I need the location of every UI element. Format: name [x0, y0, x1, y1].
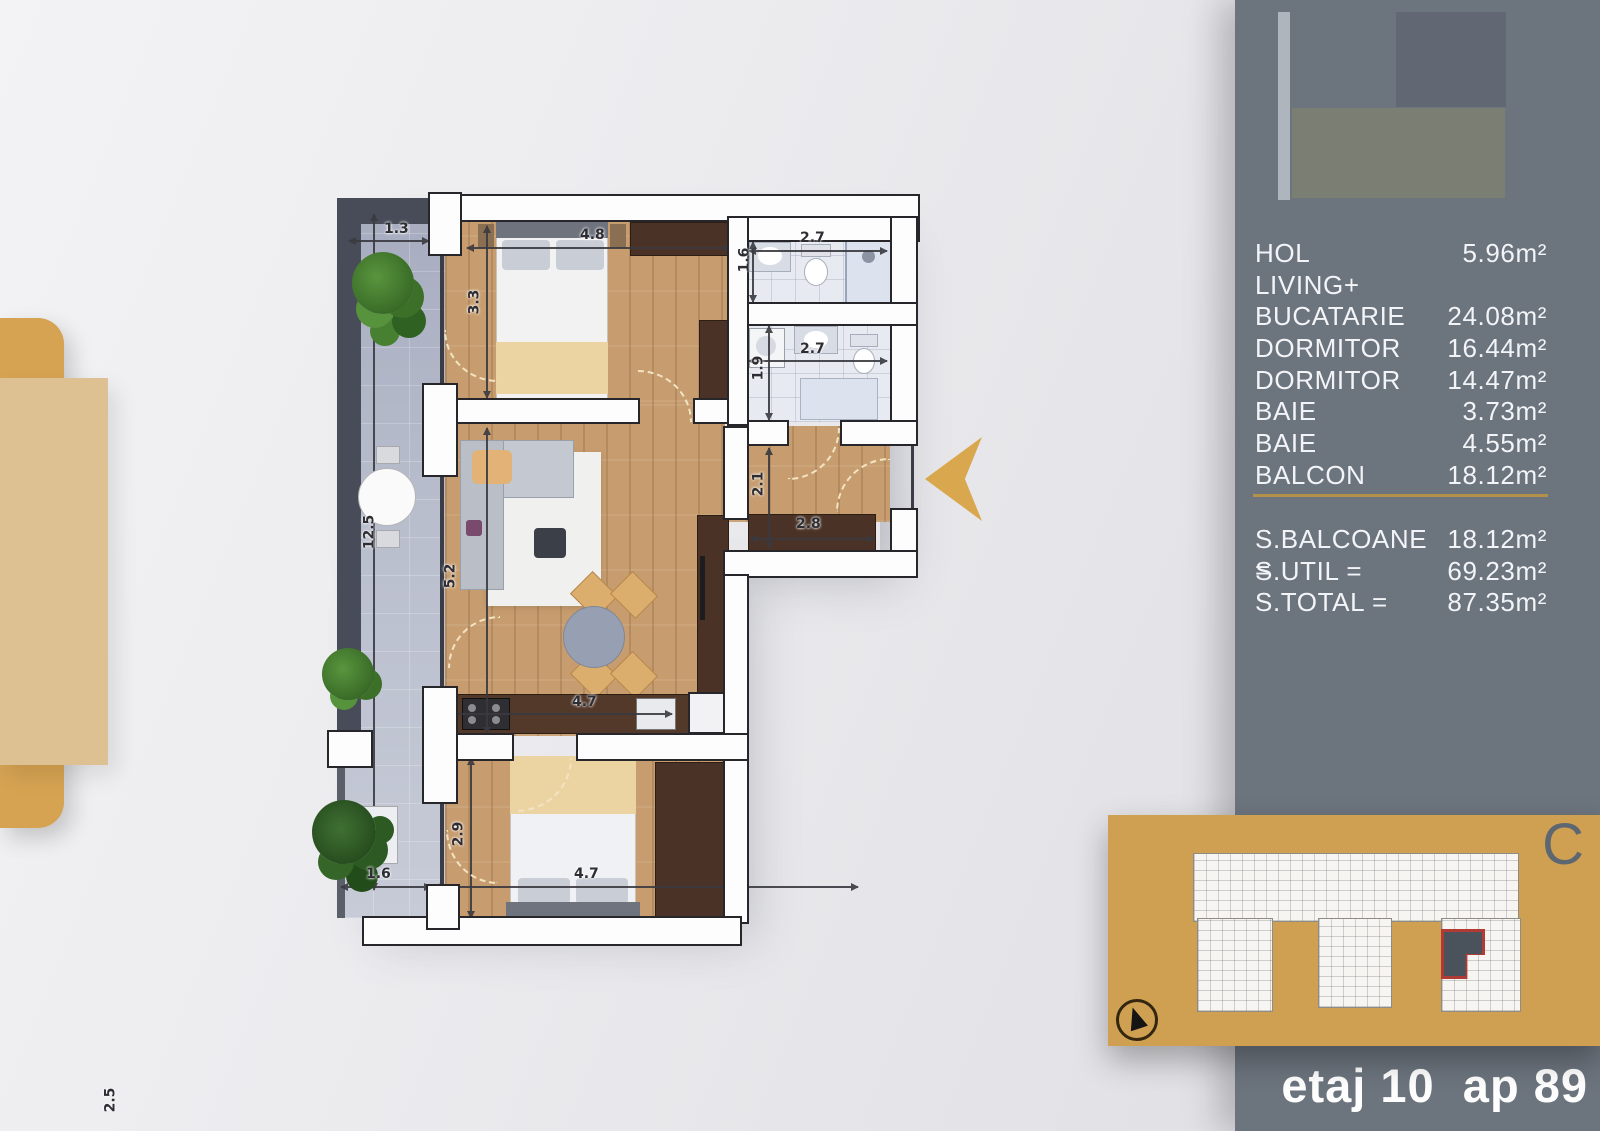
- dimension-label: 4.8: [580, 227, 605, 243]
- dimension-label: 2.8: [796, 516, 821, 532]
- dimension-label: 2.1: [750, 472, 766, 497]
- logo-ghost-block: [1396, 12, 1506, 107]
- floor-apartment-label: etaj 10 ap 89: [1281, 1058, 1588, 1113]
- room-row-label: DORMITOR: [1255, 333, 1401, 364]
- room-row-value: 14.47m²: [1447, 365, 1547, 396]
- room-row-value: 3.73m²: [1462, 396, 1547, 427]
- room-row-value: 24.08m²: [1447, 301, 1547, 332]
- room-row-label: LIVING+: [1255, 270, 1360, 301]
- site-plan-panel: C: [1108, 815, 1600, 1046]
- room-row: BALCON18.12m²: [1255, 460, 1547, 492]
- dimension-label: 1.6: [366, 866, 391, 882]
- logo-ghost-block: [1292, 108, 1505, 198]
- room-row: DORMITOR14.47m²: [1255, 365, 1547, 397]
- room-row-label: BAIE: [1255, 396, 1317, 427]
- dimension-label: 4.7: [574, 866, 599, 882]
- total-row-value: 69.23m²: [1447, 556, 1547, 587]
- room-area-list: HOL5.96m²LIVING+BUCATARIE24.08m²DORMITOR…: [1255, 238, 1547, 492]
- room-row-value: 5.96m²: [1462, 238, 1547, 269]
- dimension-label: 1.6: [736, 248, 752, 273]
- room-row: BAIE3.73m²: [1255, 396, 1547, 428]
- dimension-label: 2.5: [102, 1088, 118, 1113]
- room-row: LIVING+: [1255, 270, 1547, 302]
- page: 1.312.53.34.82.71.62.71.92.12.85.24.72.9…: [0, 0, 1600, 1131]
- dimension-label: 4.7: [572, 694, 597, 710]
- room-row: BUCATARIE24.08m²: [1255, 301, 1547, 333]
- room-row-value: 4.55m²: [1462, 428, 1547, 459]
- dimension-label: 2.9: [450, 822, 466, 847]
- building-footprint-bar: [1193, 853, 1519, 922]
- section-letter: C: [1542, 811, 1584, 878]
- total-row-label: S.UTIL =: [1255, 556, 1362, 587]
- building-wing-left: [1197, 918, 1273, 1012]
- room-row-value: 18.12m²: [1447, 460, 1547, 491]
- building-wing-middle: [1318, 918, 1392, 1008]
- gold-divider: [1253, 494, 1548, 497]
- dimension-label: 5.2: [442, 564, 458, 589]
- room-row: DORMITOR16.44m²: [1255, 333, 1547, 365]
- room-row: BAIE4.55m²: [1255, 428, 1547, 460]
- dimension-label: 1.9: [750, 356, 766, 381]
- total-row: S.TOTAL =87.35m²: [1255, 587, 1547, 619]
- compass-icon: [1116, 999, 1158, 1041]
- dimension-label: 3.3: [466, 290, 482, 315]
- dimension-label: 2.7: [800, 230, 825, 246]
- area-totals-list: S.BALCOANE =18.12m²S.UTIL =69.23m²S.TOTA…: [1255, 524, 1547, 619]
- room-row-value: 16.44m²: [1447, 333, 1547, 364]
- room-row-label: DORMITOR: [1255, 365, 1401, 396]
- room-row-label: BAIE: [1255, 428, 1317, 459]
- total-row-label: S.TOTAL =: [1255, 587, 1388, 618]
- total-row-value: 18.12m²: [1447, 524, 1547, 555]
- room-row: HOL5.96m²: [1255, 238, 1547, 270]
- dimension-label: 12.5: [361, 515, 377, 550]
- room-row-label: BUCATARIE: [1255, 301, 1405, 332]
- room-row-label: BALCON: [1255, 460, 1366, 491]
- dimension-label: 2.7: [800, 341, 825, 357]
- logo-mark: [1278, 12, 1290, 200]
- total-row-value: 87.35m²: [1447, 587, 1547, 618]
- total-row: S.BALCOANE =18.12m²: [1255, 524, 1547, 556]
- dimension-label: 1.3: [384, 221, 409, 237]
- room-row-label: HOL: [1255, 238, 1310, 269]
